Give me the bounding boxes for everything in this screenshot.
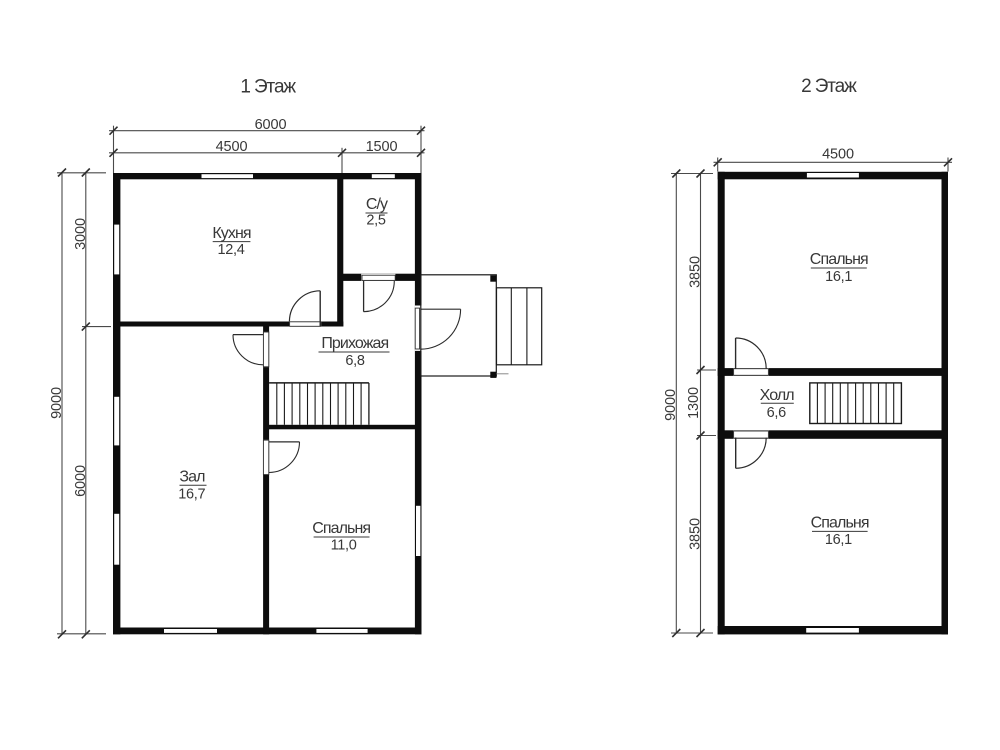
svg-text:9000: 9000 [663, 389, 679, 421]
svg-text:3850: 3850 [688, 256, 704, 288]
svg-text:Холл: Холл [760, 387, 795, 404]
svg-text:6,6: 6,6 [767, 405, 786, 421]
svg-text:Кухня: Кухня [212, 225, 251, 242]
svg-text:2 Этаж: 2 Этаж [801, 76, 857, 97]
svg-text:6,8: 6,8 [345, 353, 364, 369]
svg-text:6000: 6000 [255, 117, 287, 133]
svg-text:Спальня: Спальня [811, 514, 869, 531]
svg-text:1300: 1300 [686, 387, 702, 419]
svg-text:16,1: 16,1 [825, 269, 852, 285]
svg-text:11,0: 11,0 [331, 537, 357, 553]
svg-text:1500: 1500 [366, 139, 398, 155]
svg-text:Зал: Зал [179, 468, 205, 485]
svg-text:С/у: С/у [366, 196, 388, 213]
svg-text:1 Этаж: 1 Этаж [240, 76, 296, 97]
svg-text:Прихожая: Прихожая [321, 335, 388, 352]
svg-text:12,4: 12,4 [217, 242, 244, 258]
svg-text:16,7: 16,7 [178, 486, 205, 502]
svg-text:2,5: 2,5 [366, 213, 385, 229]
svg-text:3850: 3850 [688, 518, 704, 550]
svg-text:16,1: 16,1 [825, 532, 852, 548]
svg-text:Спальня: Спальня [312, 520, 370, 537]
svg-text:9000: 9000 [49, 387, 65, 419]
svg-text:6000: 6000 [73, 465, 89, 497]
svg-text:3000: 3000 [73, 218, 89, 250]
svg-text:Спальня: Спальня [810, 251, 868, 268]
svg-text:4500: 4500 [216, 139, 248, 155]
svg-text:4500: 4500 [822, 147, 854, 163]
